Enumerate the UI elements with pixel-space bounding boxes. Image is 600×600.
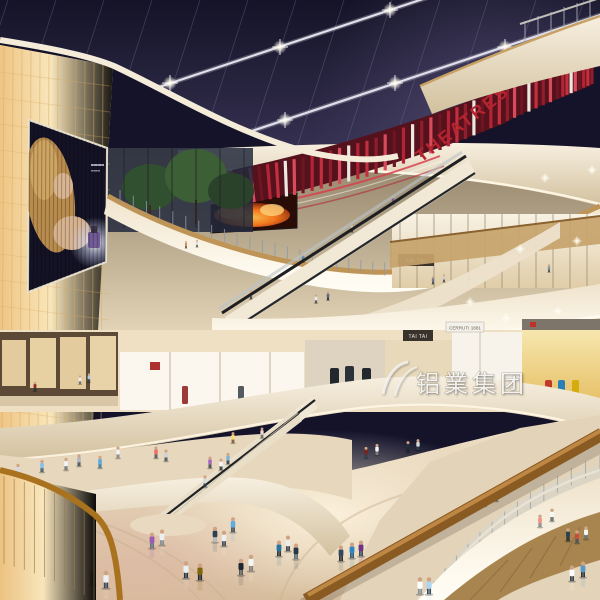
cerruti-sign-text: CERRUTI 1881 — [449, 325, 481, 330]
yellow-store-logo — [530, 322, 536, 327]
left-corridor — [0, 332, 118, 406]
watermark-text: 铝業集团 — [416, 371, 528, 398]
tai-tai-lower-sign-text: TAI TAI — [409, 334, 428, 340]
mall-atrium-rendering: THEATRES — [0, 0, 600, 600]
escalator-landing — [130, 514, 206, 536]
center-store-red-sign — [150, 362, 160, 370]
level4-storefronts: TAI TAI — [390, 214, 600, 288]
scene-canvas: THEATRES — [0, 0, 600, 600]
